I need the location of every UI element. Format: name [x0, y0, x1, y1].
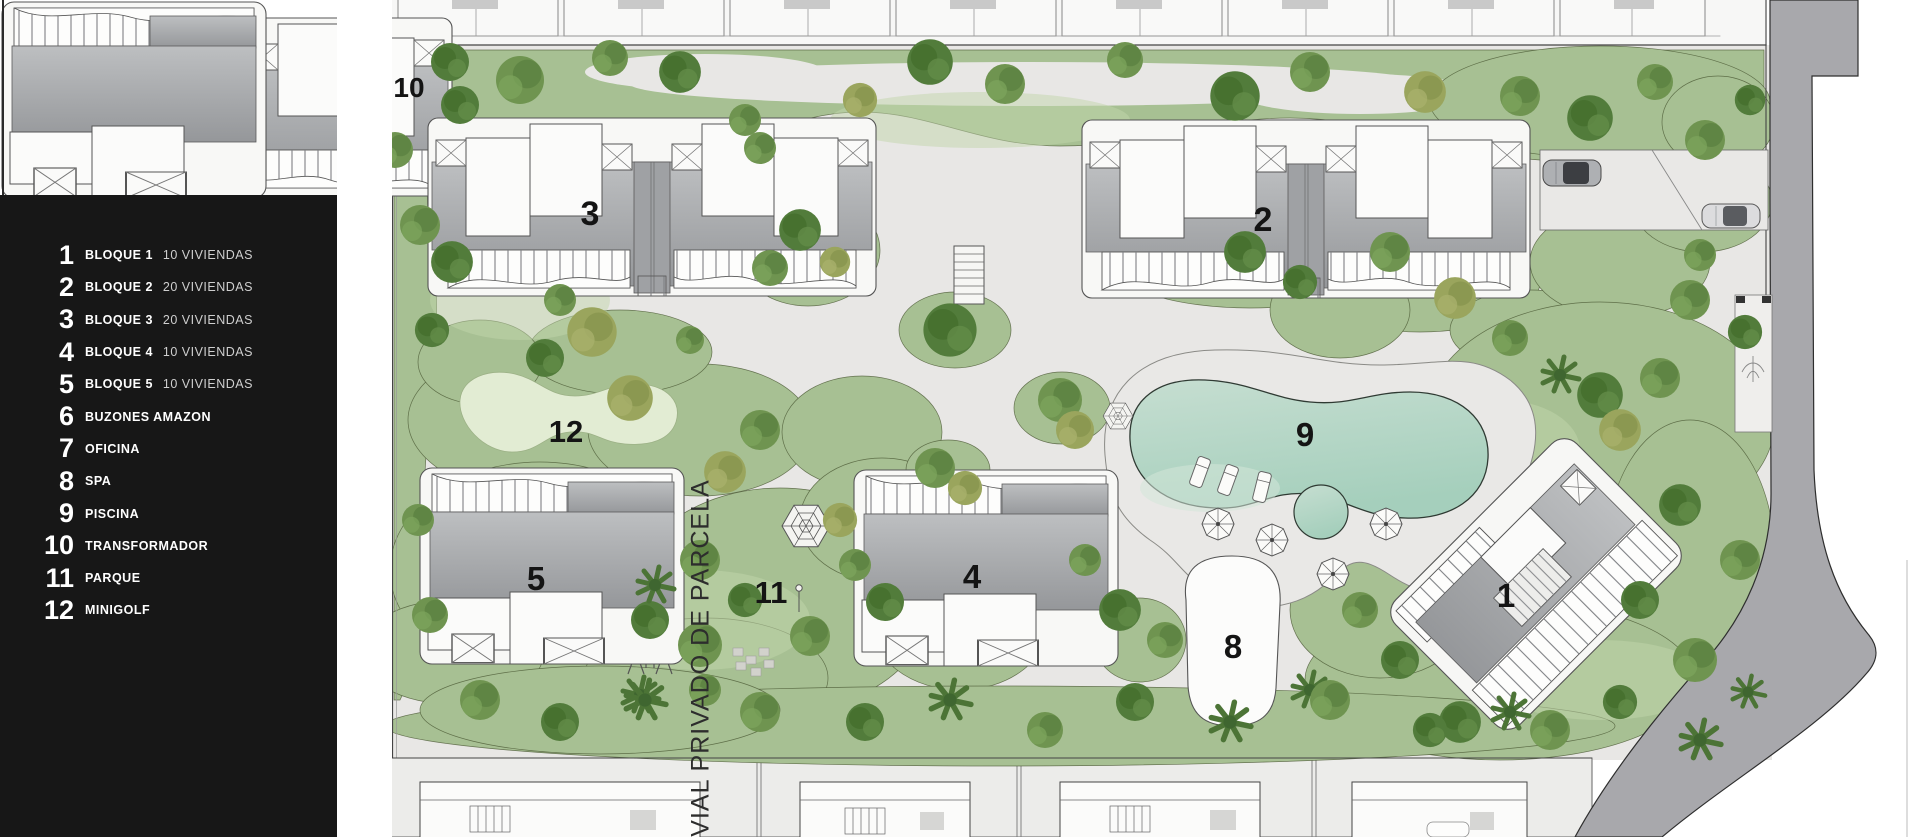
page-edge-line	[2, 0, 4, 196]
legend-item-2: 2BLOQUE 220 VIVIENDAS	[0, 271, 337, 303]
legend-item-9: 9PISCINA	[0, 497, 337, 529]
south-neighbour-houses	[377, 758, 1592, 837]
label-pool: 9	[1296, 416, 1314, 453]
legend-num: 8	[38, 468, 74, 495]
legend-sublabel: 20 VIVIENDAS	[163, 280, 253, 294]
legend-label: BUZONES AMAZON	[85, 410, 211, 424]
legend-sublabel: 10 VIVIENDAS	[163, 345, 253, 359]
legend-label: MINIGOLF	[85, 603, 150, 617]
legend-num: 6	[38, 403, 74, 430]
label-transformer: 10	[393, 72, 424, 103]
legend-label: TRANSFORMADOR	[85, 539, 208, 553]
legend-item-11: 11PARQUE	[0, 562, 337, 594]
label-block-3: 3	[581, 195, 600, 233]
legend-item-7: 7OFICINA	[0, 433, 337, 465]
legend-num: 1	[38, 242, 74, 269]
legend-label: BLOQUE 3	[85, 313, 153, 327]
label-block-2: 2	[1254, 201, 1273, 239]
label-spa: 8	[1224, 628, 1242, 665]
legend-num: 5	[38, 371, 74, 398]
legend-item-1: 1BLOQUE 110 VIVIENDAS	[0, 239, 337, 271]
legend-item-12: 12MINIGOLF	[0, 594, 337, 626]
legend-item-10: 10TRANSFORMADOR	[0, 530, 337, 562]
legend-sublabel: 10 VIVIENDAS	[163, 377, 253, 391]
car-icon	[1543, 160, 1601, 186]
driveway	[1540, 150, 1768, 230]
legend-num: 11	[38, 565, 74, 592]
legend-item-8: 8SPA	[0, 465, 337, 497]
legend-item-4: 4BLOQUE 410 VIVIENDAS	[0, 336, 337, 368]
building-3	[428, 118, 876, 296]
legend-item-5: 5BLOQUE 510 VIVIENDAS	[0, 368, 337, 400]
street-name-label: VIAL PRIVADO DE PARCELA	[687, 479, 716, 836]
car-icon	[1702, 204, 1760, 228]
label-block-5: 5	[527, 560, 545, 597]
legend-label: BLOQUE 1	[85, 248, 153, 262]
label-park: 11	[755, 575, 788, 610]
legend-sublabel: 10 VIVIENDAS	[163, 248, 253, 262]
label-minigolf: 12	[549, 414, 583, 449]
legend-num: 7	[38, 435, 74, 462]
legend-num: 10	[38, 532, 74, 559]
legend-label: BLOQUE 5	[85, 377, 153, 391]
label-block-1: 1	[1497, 577, 1515, 614]
site-plan-page: 1 2 3 4 5 8 9 10 11 12 VIAL PRIVADO DE P…	[0, 0, 1920, 837]
legend-label: PISCINA	[85, 507, 139, 521]
legend-num: 4	[38, 339, 74, 366]
legend-label: BLOQUE 4	[85, 345, 153, 359]
legend-num: 12	[38, 597, 74, 624]
stair-icon	[954, 246, 984, 304]
legend-label: OFICINA	[85, 442, 140, 456]
legend-sublabel: 20 VIVIENDAS	[163, 313, 253, 327]
legend-num: 9	[38, 500, 74, 527]
legend-label: SPA	[85, 474, 111, 488]
legend-item-6: 6BUZONES AMAZON	[0, 400, 337, 432]
legend-num: 2	[38, 274, 74, 301]
round-pool	[1294, 485, 1348, 539]
legend-label: BLOQUE 2	[85, 280, 153, 294]
north-neighbour-houses	[392, 0, 1767, 45]
label-block-4: 4	[963, 558, 982, 595]
legend-num: 3	[38, 306, 74, 333]
legend-item-3: 3BLOQUE 320 VIVIENDAS	[0, 304, 337, 336]
legend-label: PARQUE	[85, 571, 141, 585]
legend-panel: 1BLOQUE 110 VIVIENDAS 2BLOQUE 220 VIVIEN…	[0, 195, 337, 837]
street-strip: VIAL PRIVADO DE PARCELA	[337, 0, 392, 837]
